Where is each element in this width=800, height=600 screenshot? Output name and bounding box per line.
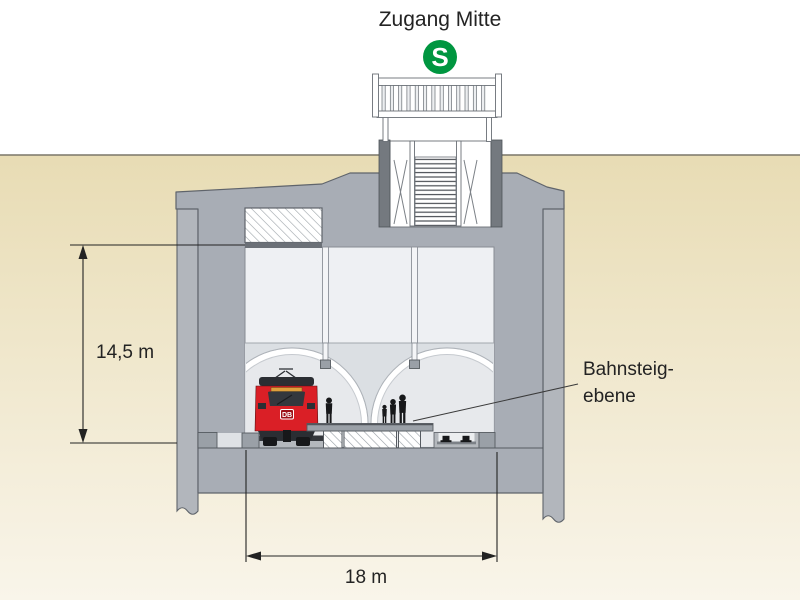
headlight-left (258, 403, 266, 409)
diagram-canvas: DB (0, 0, 800, 600)
escalator-steps (415, 157, 456, 226)
depth-label: 14,5 m (96, 342, 154, 363)
rail-right (463, 436, 470, 442)
sbahn-train: DB (255, 369, 318, 446)
db-logo: DB (281, 410, 294, 420)
sbahn-logo-letter: S (431, 42, 448, 72)
pile-wall-right (543, 205, 564, 522)
shaft-wall-right (491, 140, 502, 227)
shaft-wall-left (379, 140, 390, 227)
db-logo-text: DB (282, 412, 292, 419)
page-title: Zugang Mitte (379, 8, 502, 31)
platform-label-line1: Bahnsteig- (583, 359, 674, 380)
station-cross-section-diagram: DB (0, 0, 800, 600)
headlight-right (307, 403, 315, 409)
entrance-railing (373, 74, 502, 142)
sbahn-logo-icon: S (423, 40, 457, 74)
destination-sign (271, 388, 302, 392)
wheel-left (263, 437, 277, 446)
right-track (434, 433, 479, 449)
platform (307, 424, 433, 449)
coupler (283, 430, 291, 442)
rail-left (443, 436, 450, 442)
train-roof (259, 377, 314, 386)
entrance-shaft (379, 140, 502, 227)
pile-wall-left (177, 200, 198, 514)
platform-label-line2: ebene (583, 386, 636, 407)
width-label: 18 m (345, 567, 387, 588)
technical-room (245, 208, 322, 248)
wheel-right (296, 437, 310, 446)
